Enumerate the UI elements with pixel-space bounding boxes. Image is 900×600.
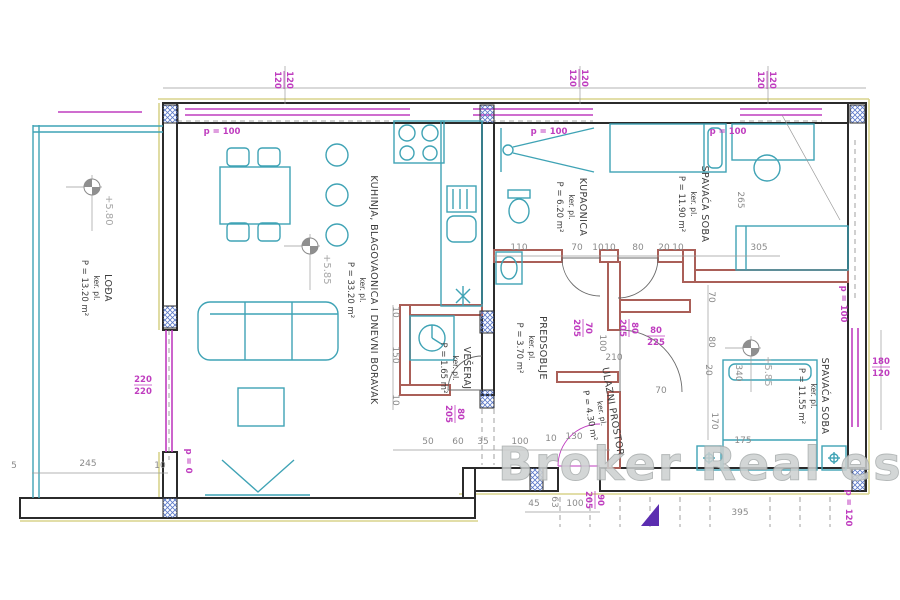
opening-size-top: 220 [134,375,152,385]
opening-size-top: 120 [579,69,589,87]
kitchen-counter [394,121,482,306]
dimension-label: 80 [632,243,644,253]
watermark: Broker Real estate [498,437,900,491]
dimension-label: 50 [422,437,434,447]
opening-size-top: 80 [650,326,662,336]
room-finish: ker. pl. [567,194,576,219]
dimension-label: 70 [655,386,667,396]
dimension-label: 70 [706,291,716,303]
dimension-label: 45 [528,499,539,509]
quadrant [310,246,318,254]
dimension-label: 5 [11,461,17,471]
bar-stools [326,144,348,246]
opening-size-bottom: 205 [571,319,581,337]
opening-size-bottom: 120 [872,369,890,379]
room-area: P = 1.65 m² [438,343,448,394]
opening-parapet-label: p = 0 [183,448,193,473]
room-label: KUPAONICAker. pl.P = 6.20 m² [554,178,588,237]
room-area: P = 11.55 m² [796,368,806,424]
room-area: P = 6.20 m² [554,182,564,233]
dimension-label: 150 [390,346,400,363]
elevation-value: +5.85 [762,356,773,387]
floor-plan-page: 5245101107010108020103052651015010506035… [0,0,900,600]
dimension-label: 63 [549,496,559,507]
floor-plan: 5245101107010108020103052651015010506035… [0,0,900,600]
room-area: P = 4.30 m² [580,390,599,442]
opening-size-label: 80205 [443,405,465,423]
dimension-label: 245 [79,459,96,469]
room-title: KUHINJA, BLAGOVAONICA I DNEVNI BORAVAK [368,175,379,405]
opening-size-bottom: 205 [583,491,593,509]
sofa [198,302,338,360]
dimension-label: 10 [154,461,166,471]
dimension-label: 395 [731,508,748,518]
room-title: VEŠERAJ [461,347,473,390]
quadrant [92,187,100,195]
room-title: KUPAONICA [577,178,588,237]
opening-size-bottom: 120 [567,69,577,87]
room-label: SPAVAĆA SOBAker. pl.P = 11.90 m² [676,166,711,243]
quadrant [751,348,759,356]
room-label: SPAVAĆA SOBAker. pl.P = 11.55 m² [796,358,831,435]
room-finish: ker. pl. [451,355,460,380]
dimension-label: 70 [571,243,583,253]
opening-size-top: 90 [595,494,605,506]
dimension-label: 170 [709,412,719,429]
room-area: P = 11.90 m² [676,176,686,232]
dimension-label: 20 [658,243,670,253]
dimension-label: 80 [706,336,716,348]
opening-size-top: 70 [583,322,593,334]
dimension-label: 110 [510,243,527,253]
opening-size-bottom: 225 [647,338,665,348]
boiler-symbol [456,286,470,306]
opening-size-label: 220220 [134,375,152,397]
dimension-label: 60 [452,437,464,447]
opening-parapet-label: p = 120 [843,490,853,527]
dimension-label: 10 [390,306,400,318]
dimension-label: 340 [733,364,743,381]
opening-size-label: 120120 [755,71,777,89]
opening-size-label: 80205 [617,319,639,337]
elevation-value: +5.80 [103,195,114,226]
room-title: SPAVAĆA SOBA [819,358,831,435]
room-area: P = 33.20 m² [345,262,355,318]
dining-set [220,148,290,241]
dimension-label: 10 [390,394,400,406]
opening-size-bottom: 205 [443,405,453,423]
room-title: LOĐA [102,274,113,302]
dimension-label: 10 [592,243,604,253]
opening-size-bottom: 205 [617,319,627,337]
room-finish: ker. pl. [358,277,367,302]
dimension-label: 20 [703,364,713,376]
room-label: KUHINJA, BLAGOVAONICA I DNEVNI BORAVAKke… [345,175,379,405]
opening-size-label: 120120 [272,71,294,89]
quadrant [743,340,751,348]
elevation-marker: +5.80 [66,175,114,231]
opening-size-bottom: 220 [134,387,152,397]
opening-size-top: 180 [872,357,890,367]
opening-parapet-label: p = 100 [710,127,747,137]
room-label: PREDSOBLJEker. pl.P = 3.70 m² [514,316,548,380]
opening-size-top: 80 [455,408,465,420]
room-finish: ker. pl. [809,383,818,408]
room-area: P = 3.70 m² [514,323,524,374]
dimension-label: 265 [735,191,745,208]
dimension-label: 10 [604,243,616,253]
dimension-label: 10 [672,243,684,253]
interior-walls [400,123,848,468]
opening-size-label: 70205 [571,319,593,337]
room-label: VEŠERAJker. pl.P = 1.65 m² [438,343,473,394]
bedroom1-furniture [610,115,848,270]
dimension-label: 210 [605,353,622,363]
opening-size-label: 120120 [567,69,589,87]
elevation-marker: +5.85 [284,234,332,290]
quadrant [302,238,310,246]
room-title: PREDSOBLJE [537,316,548,380]
tv-stand [205,460,310,495]
room-finish: ker. pl. [92,275,101,300]
opening-size-bottom: 120 [272,71,282,89]
opening-size-top: 80 [629,322,639,334]
dimension-label: 305 [750,243,767,253]
opening-size-bottom: 120 [755,71,765,89]
elevation-value: +5.85 [321,254,332,285]
room-title: SPAVAĆA SOBA [699,166,711,243]
dimension-label: 100 [597,334,607,351]
room-area: P = 13.20 m² [79,260,89,316]
opening-parapet-label: p = 100 [531,127,568,137]
room-finish: ker. pl. [527,335,536,360]
opening-size-top: 120 [284,71,294,89]
dimension-label: 100 [566,499,583,509]
balcony-railing [33,112,163,498]
opening-parapet-label: p = 100 [204,127,241,137]
room-label: LOĐAker. pl.P = 13.20 m² [79,260,113,316]
coffee-table [238,388,284,426]
opening-parapet-label: p = 100 [838,286,848,323]
opening-size-top: 120 [767,71,777,89]
toilet [508,190,530,223]
dimension-label: 35 [477,437,488,447]
room-finish: ker. pl. [689,191,698,216]
quadrant [84,179,92,187]
